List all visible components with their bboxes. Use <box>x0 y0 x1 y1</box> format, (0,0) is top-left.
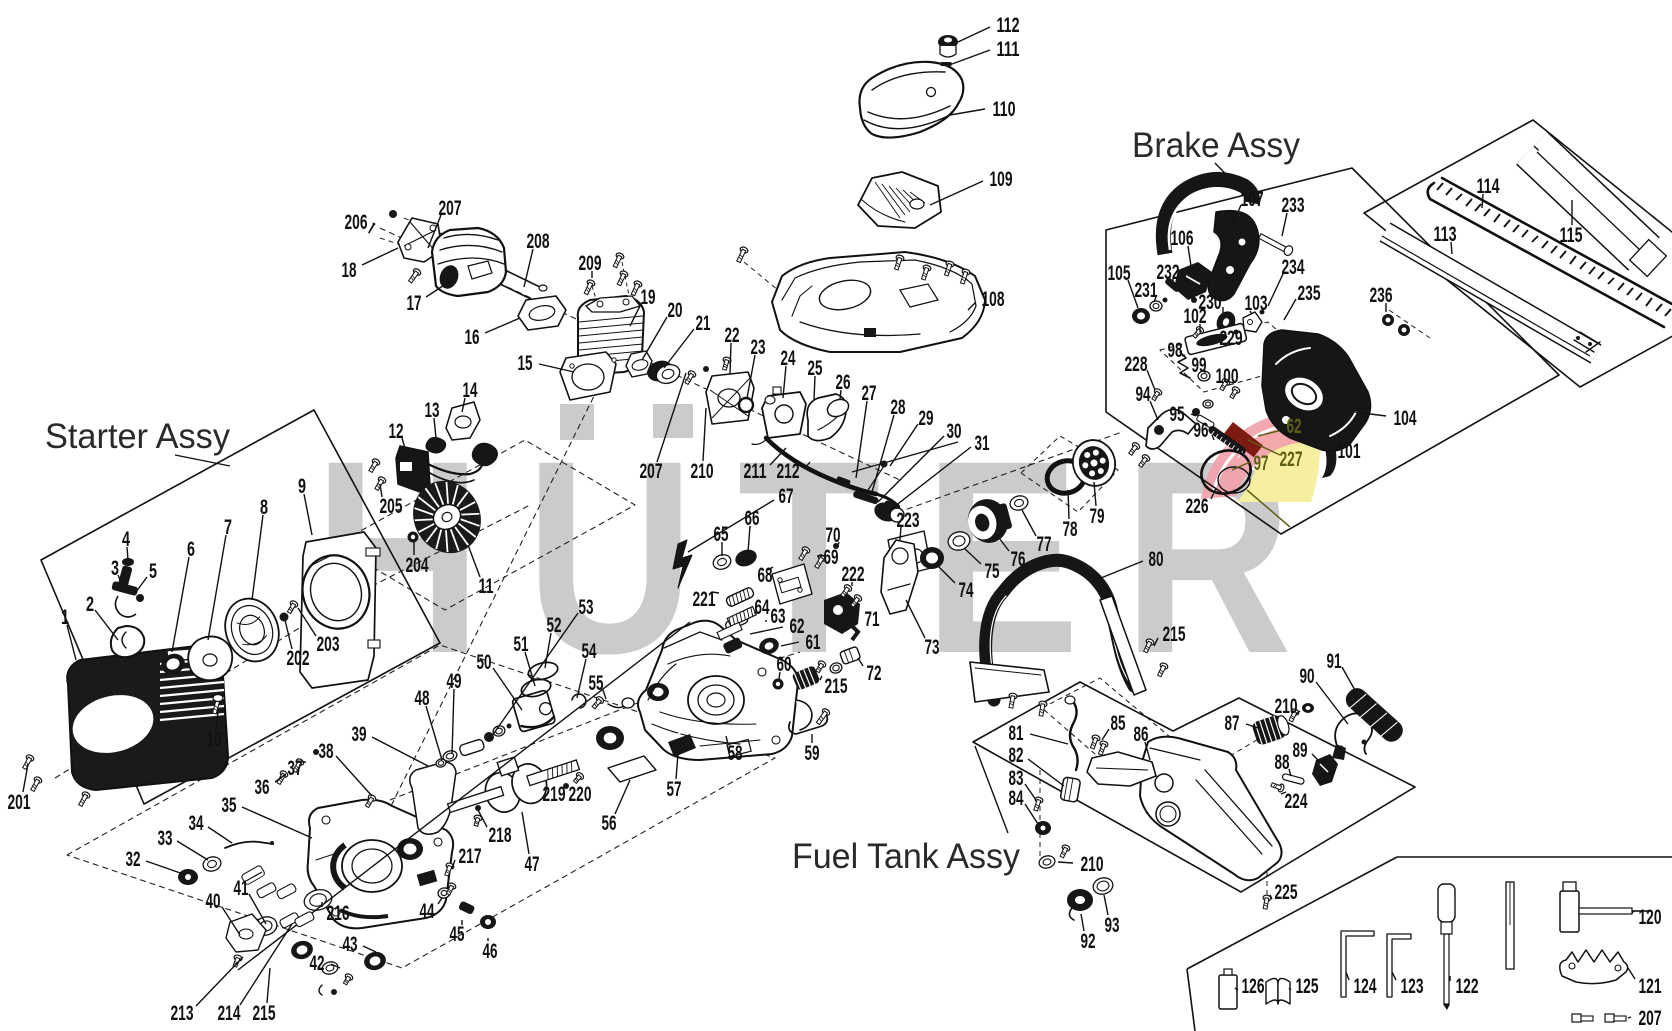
svg-text:231: 231 <box>1135 278 1158 302</box>
svg-text:125: 125 <box>1296 974 1319 998</box>
svg-text:104: 104 <box>1394 406 1417 430</box>
svg-text:229: 229 <box>1220 326 1243 350</box>
svg-text:101: 101 <box>1338 439 1361 463</box>
svg-text:80: 80 <box>1149 547 1164 571</box>
svg-text:43: 43 <box>343 932 358 956</box>
svg-text:67: 67 <box>779 484 794 508</box>
svg-text:14: 14 <box>463 378 478 402</box>
svg-text:65: 65 <box>714 522 729 546</box>
svg-text:7: 7 <box>224 515 232 539</box>
svg-text:50: 50 <box>477 650 492 674</box>
svg-text:63: 63 <box>771 604 786 628</box>
svg-text:49: 49 <box>447 669 462 693</box>
svg-text:5: 5 <box>149 559 157 583</box>
svg-text:205: 205 <box>380 494 403 518</box>
svg-text:60: 60 <box>777 652 792 676</box>
svg-text:56: 56 <box>602 811 617 835</box>
svg-text:19: 19 <box>641 285 656 309</box>
svg-text:232: 232 <box>1157 260 1180 284</box>
svg-text:59: 59 <box>805 741 820 765</box>
svg-text:36: 36 <box>255 775 270 799</box>
svg-text:45: 45 <box>450 922 465 946</box>
svg-text:3: 3 <box>111 556 119 580</box>
svg-text:66: 66 <box>745 506 760 530</box>
svg-text:Starter Assy: Starter Assy <box>45 417 230 456</box>
svg-text:Brake Assy: Brake Assy <box>1132 126 1300 165</box>
svg-text:58: 58 <box>728 741 743 765</box>
svg-text:124: 124 <box>1354 974 1377 998</box>
svg-text:29: 29 <box>919 406 934 430</box>
svg-text:202: 202 <box>287 646 310 670</box>
svg-text:93: 93 <box>1105 913 1120 937</box>
svg-text:210: 210 <box>1081 852 1104 876</box>
svg-text:42: 42 <box>310 951 325 975</box>
svg-text:52: 52 <box>547 613 562 637</box>
svg-text:201: 201 <box>8 790 31 814</box>
svg-text:18: 18 <box>342 258 357 282</box>
svg-text:22: 22 <box>725 323 740 347</box>
svg-text:207: 207 <box>640 459 663 483</box>
svg-text:69: 69 <box>824 545 839 569</box>
svg-text:12: 12 <box>389 419 404 443</box>
svg-text:88: 88 <box>1275 750 1290 774</box>
svg-text:11: 11 <box>479 574 494 598</box>
svg-text:33: 33 <box>158 826 173 850</box>
svg-text:47: 47 <box>525 852 540 876</box>
svg-text:26: 26 <box>836 370 851 394</box>
svg-text:62: 62 <box>790 614 805 638</box>
svg-text:40: 40 <box>206 889 221 913</box>
svg-text:236: 236 <box>1370 283 1393 307</box>
svg-text:6: 6 <box>187 537 195 561</box>
svg-text:46: 46 <box>483 939 498 963</box>
svg-text:10: 10 <box>207 727 222 751</box>
svg-text:74: 74 <box>959 578 974 602</box>
svg-text:207: 207 <box>439 196 462 220</box>
svg-text:94: 94 <box>1136 382 1151 406</box>
svg-text:81: 81 <box>1009 721 1024 745</box>
svg-text:217: 217 <box>459 844 482 868</box>
svg-text:71: 71 <box>865 607 880 631</box>
svg-text:222: 222 <box>842 562 865 586</box>
svg-text:227: 227 <box>1280 447 1303 471</box>
svg-text:86: 86 <box>1134 722 1149 746</box>
svg-text:228: 228 <box>1125 352 1148 376</box>
svg-text:110: 110 <box>993 97 1016 121</box>
svg-text:70: 70 <box>826 523 841 547</box>
svg-text:97: 97 <box>1254 451 1269 475</box>
svg-text:215: 215 <box>825 674 848 698</box>
svg-text:109: 109 <box>990 167 1013 191</box>
svg-text:4: 4 <box>122 527 130 551</box>
svg-text:221: 221 <box>693 587 716 611</box>
svg-text:203: 203 <box>317 632 340 656</box>
svg-text:213: 213 <box>171 1001 194 1025</box>
svg-text:114: 114 <box>1477 174 1500 198</box>
svg-text:115: 115 <box>1560 223 1583 247</box>
svg-text:57: 57 <box>667 777 682 801</box>
svg-text:51: 51 <box>514 632 529 656</box>
svg-text:234: 234 <box>1282 255 1305 279</box>
svg-text:216: 216 <box>327 901 350 925</box>
svg-text:73: 73 <box>925 635 940 659</box>
svg-text:219: 219 <box>543 782 566 806</box>
svg-text:106: 106 <box>1171 226 1194 250</box>
svg-text:211: 211 <box>744 459 767 483</box>
svg-text:122: 122 <box>1456 974 1479 998</box>
svg-text:23: 23 <box>751 335 766 359</box>
svg-text:27: 27 <box>862 381 877 405</box>
svg-text:13: 13 <box>425 398 440 422</box>
svg-text:207: 207 <box>1639 1006 1662 1030</box>
svg-text:212: 212 <box>777 459 800 483</box>
svg-text:34: 34 <box>189 811 204 835</box>
svg-text:37: 37 <box>288 756 303 780</box>
svg-text:98: 98 <box>1168 338 1183 362</box>
svg-text:121: 121 <box>1639 974 1662 998</box>
svg-text:89: 89 <box>1293 738 1308 762</box>
svg-text:92: 92 <box>1081 929 1096 953</box>
svg-text:224: 224 <box>1285 789 1308 813</box>
svg-text:68: 68 <box>758 563 773 587</box>
svg-text:62: 62 <box>1287 414 1302 438</box>
svg-text:16: 16 <box>465 325 480 349</box>
svg-text:24: 24 <box>781 346 796 370</box>
svg-text:220: 220 <box>569 782 592 806</box>
svg-text:107: 107 <box>1241 187 1264 211</box>
svg-text:35: 35 <box>222 793 237 817</box>
svg-text:235: 235 <box>1298 281 1321 305</box>
svg-text:100: 100 <box>1216 364 1239 388</box>
svg-text:111: 111 <box>997 37 1020 61</box>
svg-text:79: 79 <box>1090 504 1105 528</box>
svg-text:215: 215 <box>253 1001 276 1025</box>
svg-text:82: 82 <box>1009 743 1024 767</box>
svg-text:78: 78 <box>1063 517 1078 541</box>
svg-text:38: 38 <box>319 739 334 763</box>
svg-text:126: 126 <box>1242 974 1265 998</box>
svg-text:233: 233 <box>1282 193 1305 217</box>
svg-text:214: 214 <box>218 1001 241 1025</box>
svg-text:9: 9 <box>298 474 306 498</box>
svg-text:85: 85 <box>1111 711 1126 735</box>
svg-text:87: 87 <box>1225 711 1240 735</box>
svg-text:226: 226 <box>1186 494 1209 518</box>
svg-text:103: 103 <box>1245 291 1268 315</box>
svg-text:15: 15 <box>518 351 533 375</box>
svg-text:54: 54 <box>582 639 597 663</box>
svg-text:75: 75 <box>985 559 1000 583</box>
svg-text:48: 48 <box>415 686 430 710</box>
svg-text:72: 72 <box>867 661 882 685</box>
svg-text:20: 20 <box>668 298 683 322</box>
svg-text:95: 95 <box>1170 402 1185 426</box>
svg-text:206: 206 <box>345 210 368 234</box>
svg-text:225: 225 <box>1275 880 1298 904</box>
svg-text:8: 8 <box>260 495 268 519</box>
svg-text:2: 2 <box>86 592 94 616</box>
svg-text:41: 41 <box>234 876 249 900</box>
svg-text:39: 39 <box>352 722 367 746</box>
svg-text:204: 204 <box>406 553 429 577</box>
svg-text:108: 108 <box>982 287 1005 311</box>
svg-text:223: 223 <box>897 508 920 532</box>
svg-text:210: 210 <box>1275 694 1298 718</box>
svg-text:64: 64 <box>755 595 770 619</box>
svg-text:21: 21 <box>696 311 711 335</box>
svg-text:102: 102 <box>1184 304 1207 328</box>
svg-text:30: 30 <box>947 419 962 443</box>
svg-text:112: 112 <box>997 13 1020 37</box>
svg-text:44: 44 <box>420 899 435 923</box>
svg-text:123: 123 <box>1401 974 1424 998</box>
svg-text:28: 28 <box>891 395 906 419</box>
svg-text:113: 113 <box>1434 222 1457 246</box>
svg-text:91: 91 <box>1327 649 1342 673</box>
svg-text:120: 120 <box>1639 905 1662 929</box>
svg-text:31: 31 <box>975 431 990 455</box>
svg-text:99: 99 <box>1192 353 1207 377</box>
svg-text:77: 77 <box>1037 532 1052 556</box>
svg-text:61: 61 <box>806 630 821 654</box>
svg-text:32: 32 <box>126 847 141 871</box>
svg-text:210: 210 <box>691 459 714 483</box>
svg-text:215: 215 <box>1163 622 1186 646</box>
svg-text:84: 84 <box>1009 786 1024 810</box>
svg-text:53: 53 <box>579 595 594 619</box>
svg-text:208: 208 <box>527 229 550 253</box>
svg-text:1: 1 <box>61 605 69 629</box>
svg-text:Fuel Tank Assy: Fuel Tank Assy <box>792 837 1020 876</box>
svg-text:17: 17 <box>407 291 422 315</box>
svg-text:218: 218 <box>489 823 512 847</box>
svg-text:90: 90 <box>1300 664 1315 688</box>
svg-text:105: 105 <box>1108 261 1131 285</box>
svg-text:25: 25 <box>808 356 823 380</box>
svg-text:96: 96 <box>1194 418 1209 442</box>
svg-text:209: 209 <box>579 251 602 275</box>
svg-text:55: 55 <box>589 671 604 695</box>
svg-text:76: 76 <box>1011 547 1026 571</box>
